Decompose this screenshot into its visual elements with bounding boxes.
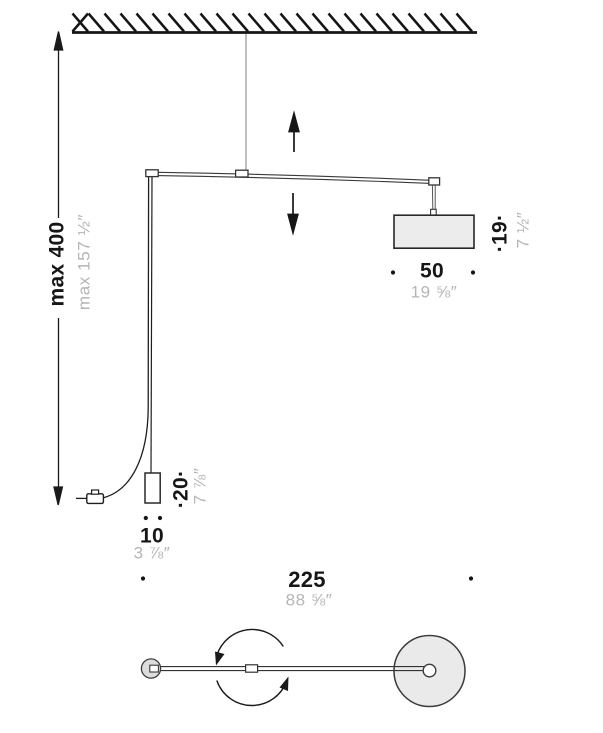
counterweight-height-metric-label: ·20· <box>171 470 192 509</box>
dimension-arrow-up-icon <box>54 32 62 51</box>
plan-center-joint <box>246 665 258 672</box>
ceiling-hatching <box>73 14 473 32</box>
counterweight-stem <box>151 177 152 473</box>
counterweight <box>145 473 160 503</box>
down-arrow-icon <box>288 193 298 233</box>
arm-right-joint <box>429 178 440 185</box>
dimension-extent-dots <box>141 270 475 580</box>
shade-nipple <box>431 209 437 215</box>
plan-pivot-notch <box>150 665 159 672</box>
dimension-arrow-down-icon <box>54 487 62 505</box>
shade-height-imperial-label: 7 ½″ <box>515 212 532 249</box>
diagram-linework <box>0 0 603 733</box>
balance-arm <box>157 172 431 183</box>
shade-height-metric-label: ·19· <box>490 214 511 253</box>
power-plug-icon <box>87 494 104 504</box>
lampshade-assembly <box>394 186 474 249</box>
overall-height-imperial-label: max 157 ½″ <box>76 214 93 310</box>
arm-center-joint <box>236 170 248 177</box>
arm-joints <box>146 170 440 185</box>
lampshade <box>394 215 474 248</box>
counterweight-height-imperial-label: 7 ⅞″ <box>192 468 209 505</box>
power-cable <box>104 177 149 498</box>
arm-length-metric-label: 225 <box>288 569 326 591</box>
counterweight-width-imperial-label: 3 ⅞″ <box>134 545 171 562</box>
overall-height-metric-label: max 400 <box>47 221 68 306</box>
movement-arrows <box>288 114 299 233</box>
shade-width-metric-label: 50 <box>420 261 444 282</box>
plug-switch <box>92 490 99 494</box>
arm-left-joint <box>146 170 158 177</box>
top-plan-view <box>141 629 465 706</box>
arm-length-imperial-label: 88 ⅝″ <box>286 592 333 609</box>
up-arrow-icon <box>289 114 299 153</box>
lamp-dimension-diagram: max 400 max 157 ½″ ·19· 7 ½″ 50 19 ⅝″ ·2… <box>0 0 603 733</box>
plan-disc-hub <box>423 664 436 677</box>
shade-width-imperial-label: 19 ⅝″ <box>411 284 458 301</box>
